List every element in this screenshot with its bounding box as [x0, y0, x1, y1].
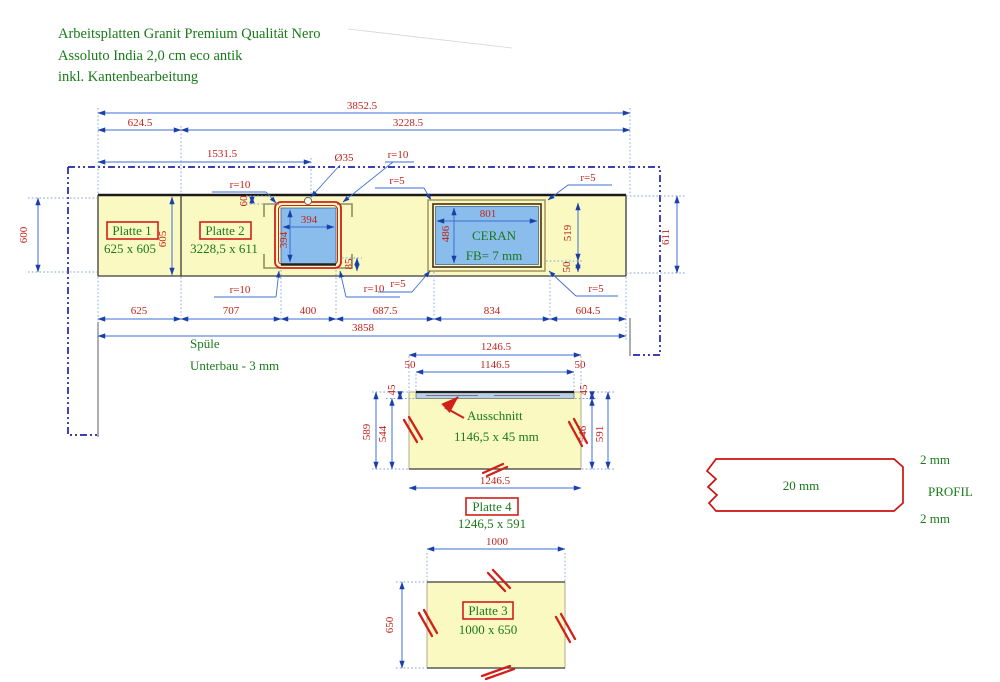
dim-faucet-hole: Ø35 [335, 152, 354, 164]
profile-thickness: 20 mm [783, 478, 819, 493]
dim-ceran-519: 519 [562, 224, 574, 241]
dim-bottom-6: 604.5 [576, 305, 601, 317]
title-block: Arbeitsplatten Granit Premium Qualität N… [58, 26, 321, 85]
technical-drawing-page: Arbeitsplatten Granit Premium Qualität N… [0, 0, 1000, 682]
ausschnitt-label: Ausschnitt [467, 408, 523, 423]
dim-plate4-45r: 45 [578, 384, 590, 396]
scan-artifact-line [348, 29, 512, 48]
sink-note: Spüle Unterbau - 3 mm [190, 336, 279, 373]
dim-sink-height: 394 [278, 231, 290, 248]
countertop-band [98, 195, 626, 276]
plate2-name: Platte 2 [205, 223, 244, 238]
dim-sink-width: 394 [301, 214, 318, 226]
dim-plate4-bottom: 1246.5 [480, 475, 511, 487]
dim-plate4-589: 589 [361, 423, 373, 440]
dim-sink-side-offset: 85 [343, 258, 355, 270]
radius-label-sink-bl: r=10 [230, 284, 251, 296]
countertop-slab [98, 195, 626, 276]
plate1-size: 625 x 605 [104, 241, 156, 256]
plate3-name: Platte 3 [468, 603, 507, 618]
dim-bottom-5: 834 [484, 305, 501, 317]
dim-bottom-overall: 3858 [352, 322, 375, 334]
dim-top-left: 624.5 [128, 117, 153, 129]
dim-plate4-544: 544 [377, 425, 389, 442]
plate4-drawing: 1246.5 1146.5 50 50 589 544 45 45 546 59… [361, 341, 614, 531]
ceran-cutout: CERAN FB= 7 mm 801 486 [428, 200, 545, 271]
dim-plate3-height: 650 [384, 616, 396, 633]
faucet-hole [304, 197, 311, 204]
ausschnitt-size: 1146,5 x 45 mm [454, 429, 539, 444]
edge-profile-detail: 20 mm 2 mm PROFIL 2 mm [707, 452, 973, 526]
radius-label-ceran-bl: r=5 [390, 278, 406, 290]
dim-plate4-50l: 50 [405, 359, 417, 371]
title-line-3: inkl. Kantenbearbeitung [58, 69, 198, 85]
dim-plate4-top: 1246.5 [481, 341, 512, 353]
dim-bottom-1: 625 [131, 305, 148, 317]
dim-top-overall: 3852.5 [347, 100, 378, 112]
dim-left-600: 600 [18, 226, 30, 243]
bottom-dimensions: 625 707 400 687.5 834 604.5 3858 [98, 270, 626, 340]
plate1-name: Platte 1 [112, 223, 151, 238]
plate4-name: Platte 4 [472, 499, 512, 514]
dim-sink-position: 1531.5 [207, 148, 238, 160]
dim-ceran-height: 486 [440, 225, 452, 242]
countertop-plan-svg: Arbeitsplatten Granit Premium Qualität N… [0, 0, 1000, 682]
dim-plate4-50r: 50 [575, 359, 587, 371]
plate3-drawing: 1000 650 Platte 3 1000 x 650 [384, 536, 575, 679]
dim-ceran-50: 50 [561, 261, 573, 273]
dim-ceran-width: 801 [480, 208, 497, 220]
dim-bottom-2: 707 [223, 305, 240, 317]
radius-label-ceran-br: r=5 [588, 283, 604, 295]
dim-plate3-width: 1000 [486, 536, 509, 548]
radius-label-sink-tl: r=10 [230, 179, 251, 191]
plate1-label-group: Platte 1 625 x 605 [104, 222, 158, 256]
radius-label-ceran-tr: r=5 [580, 172, 596, 184]
profile-bottom-chamfer: 2 mm [920, 511, 950, 526]
title-line-1: Arbeitsplatten Granit Premium Qualität N… [58, 26, 321, 42]
dim-top-right: 3228.5 [393, 117, 424, 129]
radius-label-sink-br: r=10 [364, 283, 385, 295]
dim-plate4-slot: 1146.5 [480, 359, 510, 371]
dim-right-611: 611 [660, 229, 672, 245]
radius-label-ceran-tl: r=5 [389, 175, 405, 187]
radius-label-top: r=10 [388, 149, 409, 161]
plate3-size: 1000 x 650 [459, 622, 518, 637]
ceran-fb-label: FB= 7 mm [466, 248, 522, 263]
title-line-2: Assoluto India 2,0 cm eco antik [58, 48, 243, 64]
plate4-size: 1246,5 x 591 [458, 516, 526, 531]
plate2-size: 3228,5 x 611 [190, 241, 258, 256]
profile-top-chamfer: 2 mm [920, 452, 950, 467]
sink-note-line1: Spüle [190, 336, 220, 351]
dim-plate1-605: 605 [157, 230, 169, 247]
dim-bottom-4: 687.5 [373, 305, 398, 317]
sink-note-line2: Unterbau - 3 mm [190, 358, 279, 373]
ceran-label: CERAN [472, 228, 517, 243]
dim-plate4-45l: 45 [386, 384, 398, 396]
top-dimensions: 3852.5 624.5 3228.5 1531.5 Ø35 r=10 r=10… [98, 100, 630, 203]
dim-sink-top-offset: 60 [238, 195, 250, 207]
profile-label: PROFIL [928, 484, 973, 499]
dim-bottom-3: 400 [300, 305, 317, 317]
dim-plate4-591: 591 [594, 426, 606, 443]
